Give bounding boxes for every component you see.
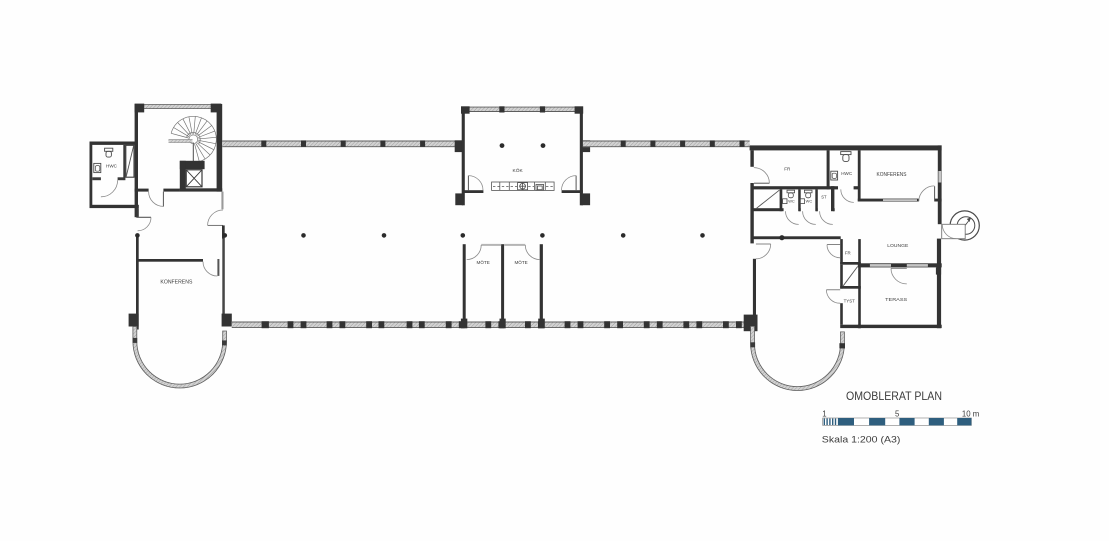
- svg-text:OMÖBLERAT PLAN: OMÖBLERAT PLAN: [846, 391, 942, 403]
- svg-text:10 m: 10 m: [962, 409, 979, 418]
- svg-text:1: 1: [822, 409, 826, 418]
- svg-text:ST: ST: [821, 194, 827, 199]
- svg-text:WC: WC: [788, 199, 795, 204]
- svg-text:FR: FR: [784, 167, 791, 172]
- svg-text:HWC: HWC: [106, 163, 118, 168]
- svg-text:TERASS: TERASS: [885, 297, 907, 303]
- svg-text:MÖTE: MÖTE: [514, 259, 527, 265]
- svg-text:HWC: HWC: [841, 171, 853, 176]
- svg-text:Skala 1:200 (A3): Skala 1:200 (A3): [822, 434, 901, 445]
- svg-text:KONFERENS: KONFERENS: [877, 172, 908, 178]
- svg-text:WC: WC: [806, 199, 813, 204]
- svg-text:KÖK: KÖK: [513, 167, 524, 174]
- svg-text:5: 5: [895, 409, 900, 418]
- svg-text:FR: FR: [845, 250, 851, 255]
- svg-text:TYST: TYST: [844, 298, 856, 303]
- svg-text:KONFERENS: KONFERENS: [160, 279, 193, 285]
- svg-text:LOUNGE: LOUNGE: [887, 243, 908, 249]
- svg-text:MÖTE: MÖTE: [477, 259, 490, 265]
